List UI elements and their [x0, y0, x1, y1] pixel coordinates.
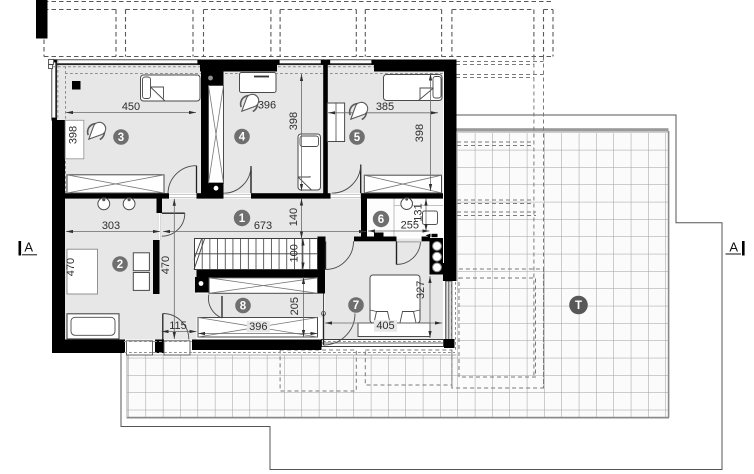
- svg-text:7: 7: [353, 300, 359, 312]
- svg-text:470: 470: [65, 258, 77, 276]
- svg-text:6: 6: [378, 214, 384, 226]
- svg-text:673: 673: [254, 220, 272, 232]
- svg-text:3: 3: [118, 132, 124, 144]
- svg-text:100: 100: [289, 244, 301, 262]
- svg-text:405: 405: [376, 320, 394, 332]
- svg-text:398: 398: [414, 124, 426, 142]
- svg-text:8: 8: [240, 301, 247, 313]
- svg-text:205: 205: [289, 297, 301, 315]
- svg-text:115: 115: [169, 320, 187, 332]
- svg-text:A: A: [24, 240, 33, 255]
- svg-text:398: 398: [67, 126, 79, 144]
- svg-text:396: 396: [258, 100, 276, 112]
- svg-text:T: T: [575, 300, 582, 312]
- svg-text:398: 398: [288, 112, 300, 130]
- svg-text:450: 450: [122, 101, 140, 113]
- svg-text:470: 470: [160, 256, 172, 274]
- svg-text:2: 2: [117, 259, 123, 271]
- svg-text:5: 5: [354, 132, 361, 144]
- svg-text:385: 385: [376, 101, 394, 113]
- svg-text:1: 1: [239, 213, 246, 225]
- svg-text:303: 303: [102, 220, 120, 232]
- svg-text:327: 327: [415, 281, 427, 299]
- svg-text:396: 396: [249, 321, 267, 333]
- svg-text:A: A: [729, 240, 738, 255]
- svg-text:4: 4: [239, 132, 246, 144]
- svg-text:131: 131: [413, 203, 425, 221]
- svg-text:140: 140: [288, 208, 300, 226]
